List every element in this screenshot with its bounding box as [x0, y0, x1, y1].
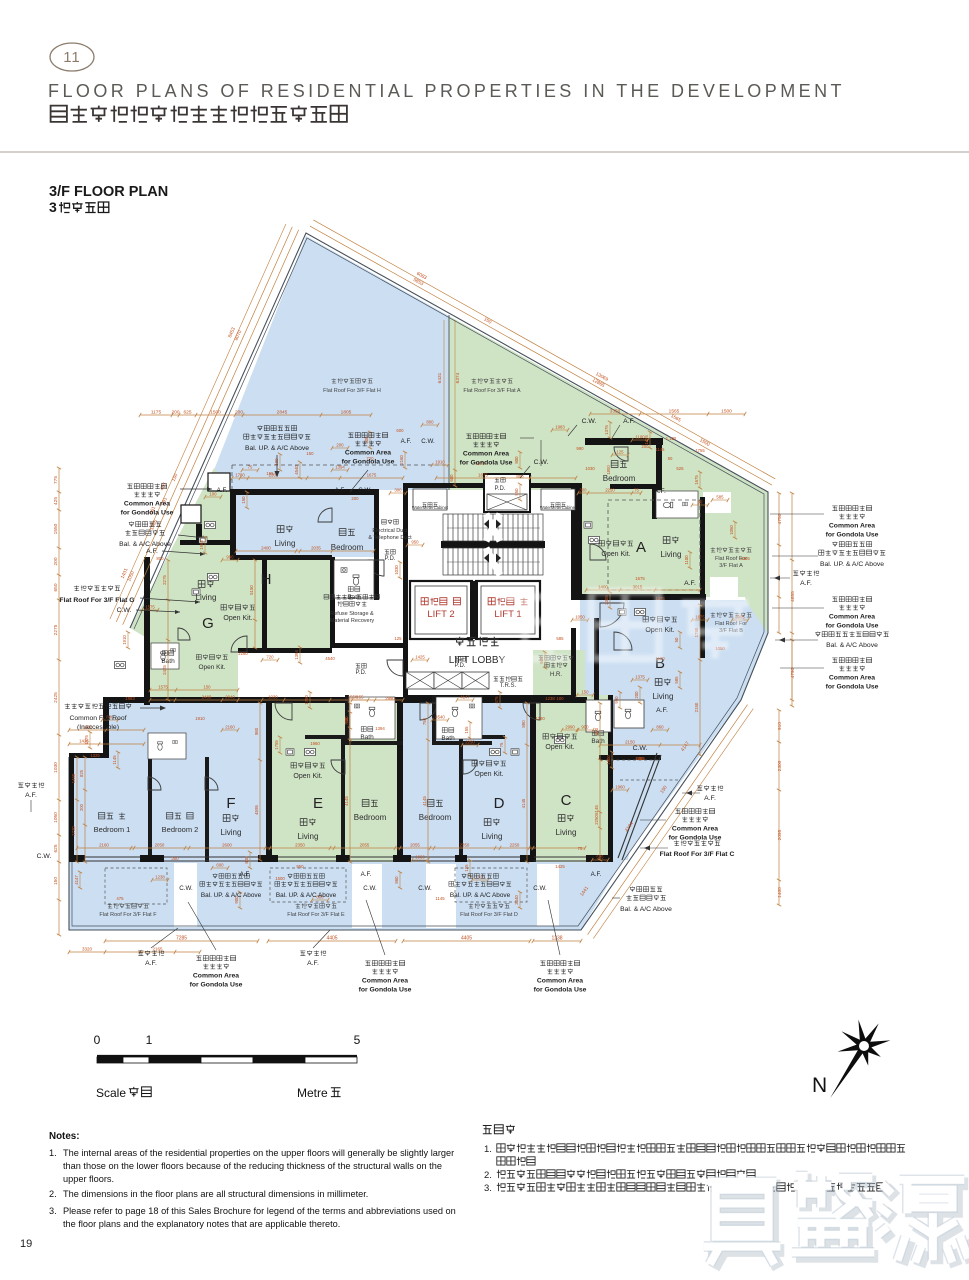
svg-text:5150: 5150	[249, 585, 254, 595]
svg-text:T.R.S.: T.R.S.	[500, 683, 517, 689]
svg-text:Bal. UP. & A/C Above: Bal. UP. & A/C Above	[201, 892, 262, 899]
svg-text:2165: 2165	[152, 947, 163, 952]
svg-text:A.F.: A.F.	[656, 707, 668, 714]
svg-text:950: 950	[296, 864, 304, 869]
svg-text:155: 155	[464, 726, 469, 734]
svg-text:C.W.: C.W.	[363, 885, 377, 892]
svg-text:1675: 1675	[695, 615, 705, 620]
svg-text:1800: 1800	[606, 465, 611, 475]
svg-text:Bath: Bath	[591, 738, 605, 745]
svg-text:880: 880	[594, 727, 599, 735]
svg-text:C.W.: C.W.	[533, 885, 547, 892]
svg-text:2035: 2035	[311, 546, 321, 551]
svg-text:1: 1	[146, 1033, 153, 1047]
svg-text:1238: 1238	[545, 696, 555, 701]
svg-text:600: 600	[396, 428, 404, 433]
svg-text:P.D.: P.D.	[455, 663, 466, 669]
svg-text:for Gondola Use: for Gondola Use	[460, 459, 513, 466]
svg-text:1565: 1565	[669, 409, 680, 415]
svg-text:for Gondola Use: for Gondola Use	[121, 509, 174, 516]
svg-text:800: 800	[426, 420, 434, 425]
svg-text:1030: 1030	[415, 855, 425, 860]
svg-text:Common Area: Common Area	[672, 825, 718, 832]
svg-text:A.F.: A.F.	[684, 580, 696, 587]
svg-text:1375: 1375	[604, 425, 609, 435]
svg-text:1394: 1394	[294, 650, 299, 660]
svg-text:P.D.: P.D.	[356, 670, 367, 676]
svg-text:Common Area: Common Area	[829, 674, 875, 681]
svg-text:Bedroom 2: Bedroom 2	[162, 825, 199, 834]
svg-text:1575: 1575	[145, 605, 155, 610]
svg-text:1983: 1983	[555, 425, 565, 430]
svg-text:4750: 4750	[777, 513, 783, 524]
svg-text:Common Area: Common Area	[193, 972, 239, 979]
svg-text:4595: 4595	[254, 805, 259, 815]
svg-text:for Gondola Use: for Gondola Use	[826, 622, 879, 629]
svg-text:200: 200	[53, 557, 59, 565]
svg-text:1238: 1238	[155, 875, 165, 880]
svg-text:than those on the lower floors: than those on the lower floors because o…	[63, 1161, 442, 1171]
svg-text:H.R.: H.R.	[550, 672, 562, 678]
svg-text:2350: 2350	[295, 843, 305, 848]
svg-text:910: 910	[777, 722, 783, 730]
svg-text:Bedroom: Bedroom	[354, 813, 387, 822]
svg-text:4147: 4147	[74, 875, 79, 885]
svg-text:P.D.: P.D.	[385, 556, 396, 562]
svg-text:P.D.: P.D.	[495, 486, 506, 492]
svg-text:for Gondola Use: for Gondola Use	[826, 531, 879, 538]
svg-text:2250: 2250	[510, 843, 520, 848]
svg-text:800: 800	[244, 856, 249, 864]
svg-text:300: 300	[580, 488, 588, 493]
svg-text:C.W.: C.W.	[534, 459, 549, 466]
svg-text:2150: 2150	[694, 702, 699, 712]
svg-text:FLOOR PLANS OF RESIDENTIAL PRO: FLOOR PLANS OF RESIDENTIAL PROPERTIES IN…	[48, 81, 845, 101]
svg-text:C.W.: C.W.	[633, 745, 648, 752]
svg-text:1500: 1500	[210, 410, 221, 416]
svg-text:Common Area: Common Area	[829, 522, 875, 529]
svg-text:Bal. UP. & A/C Above: Bal. UP. & A/C Above	[245, 445, 309, 452]
svg-text:A.F.: A.F.	[654, 488, 666, 495]
svg-text:525: 525	[596, 855, 604, 860]
svg-text:Living: Living	[482, 832, 503, 841]
svg-text:1325: 1325	[90, 753, 100, 758]
svg-text:50: 50	[674, 637, 679, 642]
svg-text:for Gondola Use: for Gondola Use	[669, 834, 722, 841]
svg-text:1675: 1675	[367, 473, 377, 478]
svg-text:1,120: 1,120	[666, 436, 677, 441]
svg-text:585: 585	[716, 495, 724, 500]
svg-text:950: 950	[411, 540, 419, 545]
svg-text:A.F.: A.F.	[146, 548, 158, 555]
svg-text:A.F.: A.F.	[217, 487, 228, 494]
svg-text:D: D	[494, 795, 505, 812]
svg-text:2275: 2275	[162, 575, 167, 585]
svg-text:1755: 1755	[274, 740, 279, 750]
svg-text:H: H	[261, 571, 272, 588]
svg-text:1780: 1780	[535, 716, 545, 721]
svg-text:200: 200	[351, 496, 359, 501]
svg-text:5145: 5145	[594, 805, 599, 815]
svg-text:3/F FLOOR PLAN: 3/F FLOOR PLAN	[49, 184, 168, 200]
svg-text:4855: 4855	[790, 591, 796, 602]
svg-text:2250: 2250	[465, 740, 475, 745]
svg-text:for Gondola Use: for Gondola Use	[342, 458, 395, 465]
svg-text:Open Kit.: Open Kit.	[474, 771, 503, 778]
svg-text:2055: 2055	[360, 843, 370, 848]
svg-text:2160: 2160	[238, 651, 248, 656]
svg-text:1910: 1910	[122, 635, 127, 645]
svg-text:A.F.: A.F.	[800, 580, 812, 587]
svg-text:Common Flat Roof: Common Flat Roof	[69, 715, 126, 722]
svg-text:2275: 2275	[53, 624, 59, 635]
svg-text:Notes:: Notes:	[49, 1131, 79, 1142]
svg-text:950: 950	[514, 488, 519, 496]
svg-text:A: A	[636, 539, 646, 556]
svg-text:N: N	[812, 1074, 827, 1097]
svg-text:100: 100	[274, 458, 279, 466]
svg-text:425: 425	[53, 497, 59, 505]
svg-text:2300: 2300	[777, 760, 783, 771]
svg-text:1730: 1730	[71, 826, 76, 836]
svg-text:50: 50	[698, 500, 703, 505]
svg-text:Living: Living	[275, 539, 296, 548]
svg-text:Flat Roof For 3/F Flat C: Flat Roof For 3/F Flat C	[660, 851, 735, 858]
svg-text:for Gondola Use: for Gondola Use	[534, 986, 587, 993]
svg-text:2150: 2150	[625, 740, 635, 745]
svg-text:2095: 2095	[777, 829, 783, 840]
svg-text:150: 150	[581, 690, 589, 695]
svg-text:650: 650	[53, 583, 59, 591]
svg-text:3320: 3320	[82, 947, 93, 952]
svg-text:1100: 1100	[684, 555, 689, 565]
svg-text:1805: 1805	[341, 410, 352, 416]
svg-text:WaterMeterCabinet: WaterMeterCabinet	[412, 505, 449, 510]
svg-text:3.: 3.	[49, 1206, 57, 1216]
svg-text:300: 300	[171, 856, 179, 861]
svg-text:625: 625	[183, 410, 191, 416]
svg-text:11: 11	[63, 49, 81, 66]
svg-text:1780: 1780	[235, 473, 245, 478]
svg-text:C.W.: C.W.	[117, 607, 132, 614]
svg-text:3.: 3.	[484, 1183, 492, 1194]
svg-text:Common Area: Common Area	[537, 977, 583, 984]
svg-text:(Inaccessible): (Inaccessible)	[77, 724, 119, 731]
svg-text:4540: 4540	[435, 715, 445, 720]
svg-text:1780: 1780	[304, 695, 309, 705]
svg-text:1030: 1030	[394, 565, 399, 575]
svg-text:Bal. & A/C Above: Bal. & A/C Above	[826, 642, 878, 649]
svg-text:A.F.: A.F.	[704, 795, 716, 802]
svg-text:1550: 1550	[53, 523, 59, 534]
svg-text:Living: Living	[556, 828, 577, 837]
svg-text:Refuse Storage &: Refuse Storage &	[330, 611, 374, 617]
svg-text:upper floors.: upper floors.	[63, 1174, 114, 1184]
svg-text:980: 980	[254, 727, 259, 735]
svg-text:300: 300	[394, 488, 402, 493]
svg-text:Open Kit.: Open Kit.	[223, 615, 252, 622]
svg-text:A.F.: A.F.	[623, 418, 635, 425]
svg-text:825: 825	[79, 769, 84, 777]
svg-text:4145: 4145	[344, 796, 349, 806]
svg-text:2.: 2.	[49, 1189, 57, 1199]
svg-text:Bal. UP. & A/C Above: Bal. UP. & A/C Above	[450, 892, 511, 899]
svg-text:Living: Living	[298, 832, 319, 841]
svg-text:The dimensions in the floor pl: The dimensions in the floor plans are al…	[63, 1189, 368, 1199]
svg-text:200: 200	[79, 803, 84, 811]
svg-text:F: F	[226, 795, 235, 812]
svg-text:525: 525	[676, 466, 684, 471]
svg-text:600: 600	[216, 863, 224, 868]
svg-text:Common Area: Common Area	[124, 500, 170, 507]
svg-text:2990: 2990	[565, 725, 575, 730]
svg-text:990: 990	[226, 555, 234, 560]
svg-text:4540: 4540	[325, 656, 335, 661]
svg-text:1400: 1400	[777, 887, 783, 898]
svg-text:1425: 1425	[415, 655, 425, 660]
svg-text:2350: 2350	[460, 843, 470, 848]
svg-text:Open Kit.: Open Kit.	[293, 773, 322, 780]
svg-text:1145: 1145	[655, 447, 665, 452]
svg-text:C.W.: C.W.	[418, 885, 432, 892]
svg-text:Bal. UP. & A/C Above: Bal. UP. & A/C Above	[820, 561, 884, 568]
svg-text:155: 155	[266, 471, 274, 476]
svg-text:2050: 2050	[155, 843, 165, 848]
svg-text:for Gondola Use: for Gondola Use	[359, 986, 412, 993]
svg-text:Bedroom: Bedroom	[419, 813, 452, 822]
svg-text:C.W.: C.W.	[179, 885, 193, 892]
svg-text:4790: 4790	[790, 667, 796, 678]
svg-text:A.F.: A.F.	[145, 960, 157, 967]
svg-text:1145: 1145	[435, 896, 445, 901]
svg-text:Common Area: Common Area	[829, 613, 875, 620]
svg-text:Bath: Bath	[360, 734, 374, 741]
svg-text:860: 860	[656, 725, 664, 730]
svg-text:Common Area: Common Area	[345, 449, 391, 456]
svg-text:2305: 2305	[740, 556, 750, 561]
svg-text:Bal. & A/C Above: Bal. & A/C Above	[620, 906, 672, 913]
svg-text:A.F.: A.F.	[361, 871, 372, 878]
svg-text:4405: 4405	[326, 936, 337, 942]
svg-text:1500: 1500	[275, 876, 285, 881]
svg-text:750: 750	[422, 717, 427, 725]
svg-text:A.F.: A.F.	[240, 871, 251, 878]
svg-text:2845: 2845	[277, 410, 288, 416]
svg-text:900: 900	[581, 725, 589, 730]
svg-text:4147: 4147	[460, 695, 470, 700]
svg-text:E: E	[313, 795, 323, 812]
svg-text:Common Area: Common Area	[463, 450, 509, 457]
svg-text:600: 600	[449, 474, 454, 482]
svg-text:1675: 1675	[635, 576, 645, 581]
svg-text:200: 200	[336, 443, 344, 448]
svg-text:2160: 2160	[99, 843, 109, 848]
svg-text:C.W.: C.W.	[582, 418, 597, 425]
svg-text:2250: 2250	[594, 815, 599, 825]
svg-text:6431: 6431	[437, 372, 443, 383]
svg-text:Please refer to page 18 of thi: Please refer to page 18 of this Sales Br…	[63, 1206, 456, 1216]
svg-text:585: 585	[556, 636, 564, 641]
svg-text:19: 19	[20, 1238, 32, 1250]
svg-text:1100: 1100	[635, 435, 645, 440]
svg-text:Bal. UP. & A/C Above: Bal. UP. & A/C Above	[276, 892, 337, 899]
svg-text:3/F Flat A: 3/F Flat A	[719, 563, 743, 569]
svg-text:800: 800	[156, 556, 164, 561]
svg-text:Bedroom 1: Bedroom 1	[94, 825, 131, 834]
svg-text:2250: 2250	[605, 488, 615, 493]
svg-text:585: 585	[674, 676, 679, 684]
svg-text:the floor plans and the explan: the floor plans and the explanatory note…	[63, 1219, 340, 1229]
svg-text:880: 880	[521, 720, 526, 728]
svg-text:6374: 6374	[455, 372, 461, 383]
svg-text:Flat Roof For 3/F Flat H: Flat Roof For 3/F Flat H	[323, 388, 381, 394]
svg-text:A.F.: A.F.	[591, 871, 602, 878]
svg-text:150: 150	[241, 496, 246, 504]
svg-text:2160: 2160	[225, 725, 235, 730]
svg-text:1030: 1030	[268, 695, 278, 700]
svg-text:200: 200	[634, 691, 639, 699]
svg-text:2.: 2.	[484, 1170, 492, 1181]
svg-text:1145: 1145	[112, 755, 117, 765]
svg-text:720: 720	[266, 655, 274, 660]
svg-text:Flat Roof For 3/F Flat D: Flat Roof For 3/F Flat D	[460, 912, 518, 918]
svg-text:200: 200	[171, 410, 179, 416]
svg-text:4540: 4540	[294, 465, 299, 475]
svg-text:625: 625	[53, 844, 59, 852]
svg-text:Open Kit.: Open Kit.	[545, 744, 574, 751]
svg-text:3: 3	[49, 199, 57, 215]
svg-text:Flat Roof For 3/F Flat E: Flat Roof For 3/F Flat E	[287, 912, 345, 918]
svg-text:990: 990	[576, 446, 584, 451]
svg-text:5: 5	[354, 1033, 361, 1047]
svg-text:990: 990	[614, 696, 619, 704]
svg-text:1675: 1675	[694, 475, 699, 485]
svg-text:75: 75	[499, 742, 504, 747]
svg-text:1030: 1030	[53, 762, 59, 773]
svg-text:Living: Living	[196, 593, 217, 602]
svg-text:Electrical Duct: Electrical Duct	[372, 528, 408, 534]
svg-text:125: 125	[464, 864, 469, 872]
svg-text:1960: 1960	[615, 785, 625, 790]
svg-text:Scale: Scale	[96, 1086, 126, 1100]
svg-text:C: C	[561, 792, 572, 809]
svg-text:1910: 1910	[195, 716, 205, 721]
svg-text:C.W.: C.W.	[37, 853, 52, 860]
svg-text:Material Recovery: Material Recovery	[330, 618, 375, 624]
svg-text:2425: 2425	[162, 665, 167, 675]
svg-text:50: 50	[668, 456, 673, 461]
svg-text:1050: 1050	[53, 812, 59, 823]
svg-text:4405: 4405	[461, 936, 472, 942]
svg-text:2040: 2040	[514, 895, 519, 905]
svg-text:2055: 2055	[410, 843, 420, 848]
svg-text:1910: 1910	[435, 460, 445, 465]
svg-text:1.: 1.	[49, 1148, 57, 1158]
svg-text:for Gondola Use: for Gondola Use	[190, 981, 243, 988]
svg-text:1030: 1030	[585, 466, 595, 471]
svg-text:Flat Roof For 3/F Flat F: Flat Roof For 3/F Flat F	[99, 912, 157, 918]
svg-text:100: 100	[556, 696, 564, 701]
svg-text:1460: 1460	[71, 773, 76, 783]
svg-text:720: 720	[344, 716, 349, 724]
svg-text:& Telephone Duct: & Telephone Duct	[368, 535, 412, 541]
svg-text:WaterMeterCabinet: WaterMeterCabinet	[540, 505, 577, 510]
svg-text:150: 150	[53, 877, 59, 885]
svg-text:Living: Living	[221, 828, 242, 837]
svg-text:Common Area: Common Area	[362, 977, 408, 984]
svg-text:for Gondola Use: for Gondola Use	[826, 683, 879, 690]
svg-text:2160: 2160	[399, 455, 404, 465]
svg-text:1983: 1983	[125, 696, 135, 701]
svg-text:2425: 2425	[53, 692, 59, 703]
svg-text:1050: 1050	[729, 525, 734, 535]
svg-text:2600: 2600	[222, 843, 232, 848]
svg-text:125: 125	[394, 636, 402, 641]
svg-text:2480: 2480	[202, 695, 212, 700]
svg-text:Bath: Bath	[441, 735, 455, 742]
svg-text:A.F.: A.F.	[335, 487, 346, 494]
svg-text:4145: 4145	[422, 796, 427, 806]
svg-text:1500: 1500	[721, 409, 732, 415]
svg-text:A.F.: A.F.	[25, 792, 37, 799]
svg-text:1.: 1.	[484, 1144, 492, 1155]
svg-text:Flat Roof For 3/F Flat A: Flat Roof For 3/F Flat A	[463, 388, 520, 394]
svg-text:860: 860	[394, 876, 399, 884]
svg-text:775: 775	[53, 476, 59, 484]
svg-text:3350: 3350	[610, 409, 621, 415]
svg-text:The internal areas of the resi: The internal areas of the residential pr…	[63, 1148, 454, 1158]
svg-text:475: 475	[116, 896, 124, 901]
svg-text:7285: 7285	[176, 936, 187, 942]
svg-text:Living: Living	[653, 692, 674, 701]
svg-text:1375: 1375	[635, 675, 645, 680]
svg-text:Open Kit.: Open Kit.	[601, 551, 630, 558]
svg-text:Living: Living	[661, 550, 682, 559]
svg-text:800: 800	[514, 456, 519, 464]
svg-text:A.F.: A.F.	[307, 960, 319, 967]
svg-text:1575: 1575	[84, 735, 89, 745]
svg-text:2990: 2990	[385, 696, 395, 701]
svg-text:1394: 1394	[375, 726, 385, 731]
svg-text:C.W.: C.W.	[421, 438, 435, 445]
svg-text:C.W.: C.W.	[358, 487, 372, 494]
svg-text:155: 155	[356, 695, 364, 700]
svg-text:475: 475	[494, 696, 499, 704]
svg-text:200: 200	[235, 410, 243, 416]
svg-text:680: 680	[636, 756, 644, 761]
svg-text:1500: 1500	[606, 755, 611, 765]
svg-text:A.F.: A.F.	[401, 438, 412, 445]
svg-text:4145: 4145	[521, 798, 526, 808]
svg-text:1983: 1983	[199, 540, 204, 550]
svg-text:1575: 1575	[158, 685, 168, 690]
svg-text:1175: 1175	[151, 410, 162, 416]
svg-text:1425: 1425	[555, 864, 565, 869]
svg-text:1960: 1960	[310, 741, 320, 746]
svg-text:75: 75	[578, 846, 583, 851]
svg-text:1675: 1675	[478, 473, 488, 478]
svg-text:2305: 2305	[604, 595, 609, 605]
svg-text:G: G	[202, 615, 214, 632]
svg-text:75: 75	[634, 488, 639, 493]
svg-text:Flat Roof For 3/F Flat G: Flat Roof For 3/F Flat G	[59, 597, 134, 604]
svg-text:LIFT 2: LIFT 2	[427, 609, 454, 620]
svg-text:1755: 1755	[695, 448, 705, 453]
svg-text:0: 0	[94, 1033, 101, 1047]
svg-text:150: 150	[204, 685, 212, 690]
svg-text:Metre: Metre	[297, 1086, 328, 1100]
svg-text:125: 125	[616, 450, 624, 455]
